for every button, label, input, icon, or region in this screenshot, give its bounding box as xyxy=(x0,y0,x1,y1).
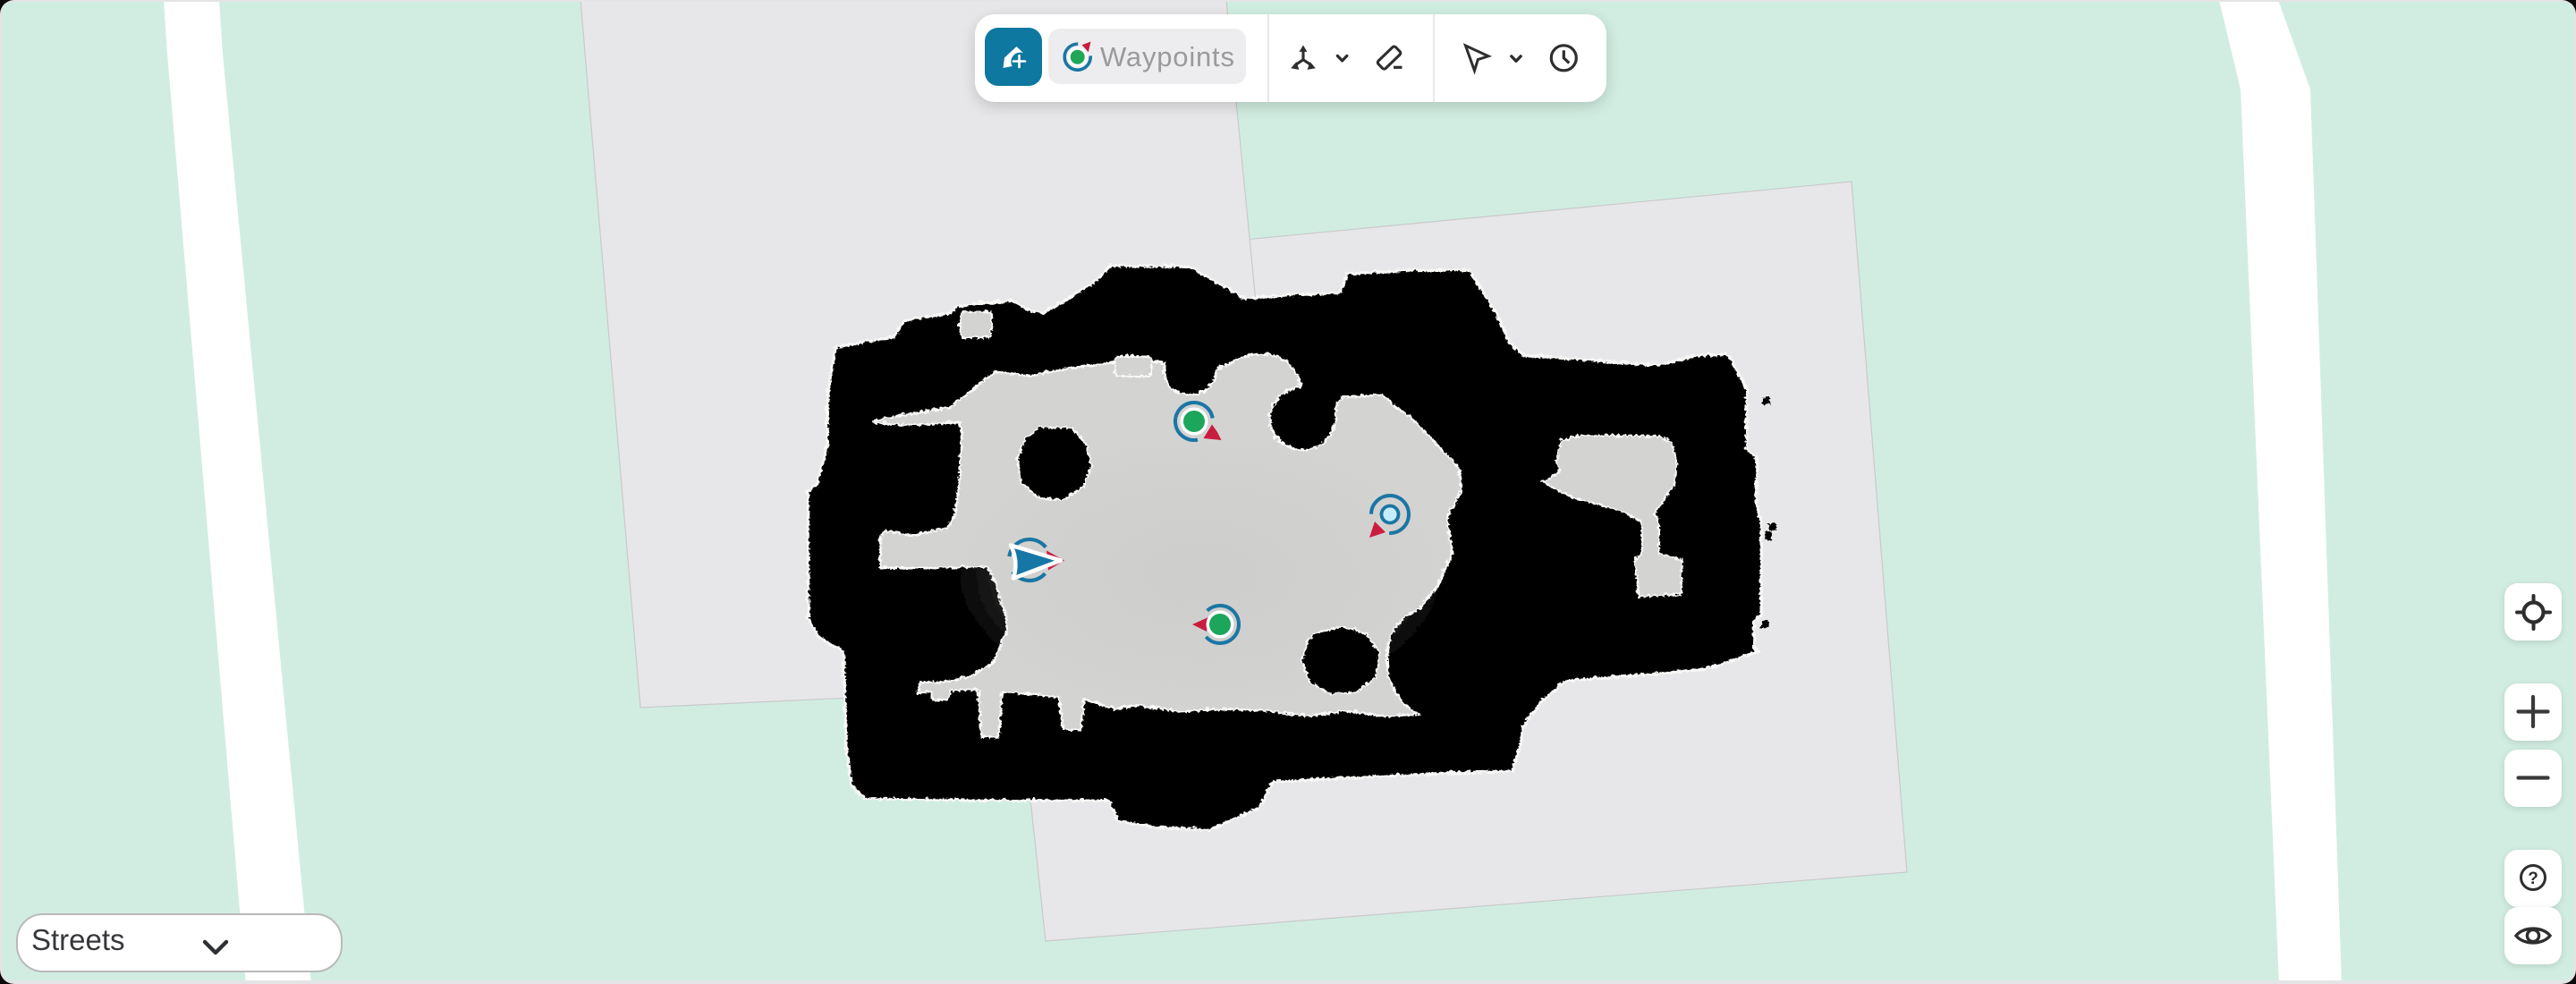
svg-text:?: ? xyxy=(2528,869,2538,888)
